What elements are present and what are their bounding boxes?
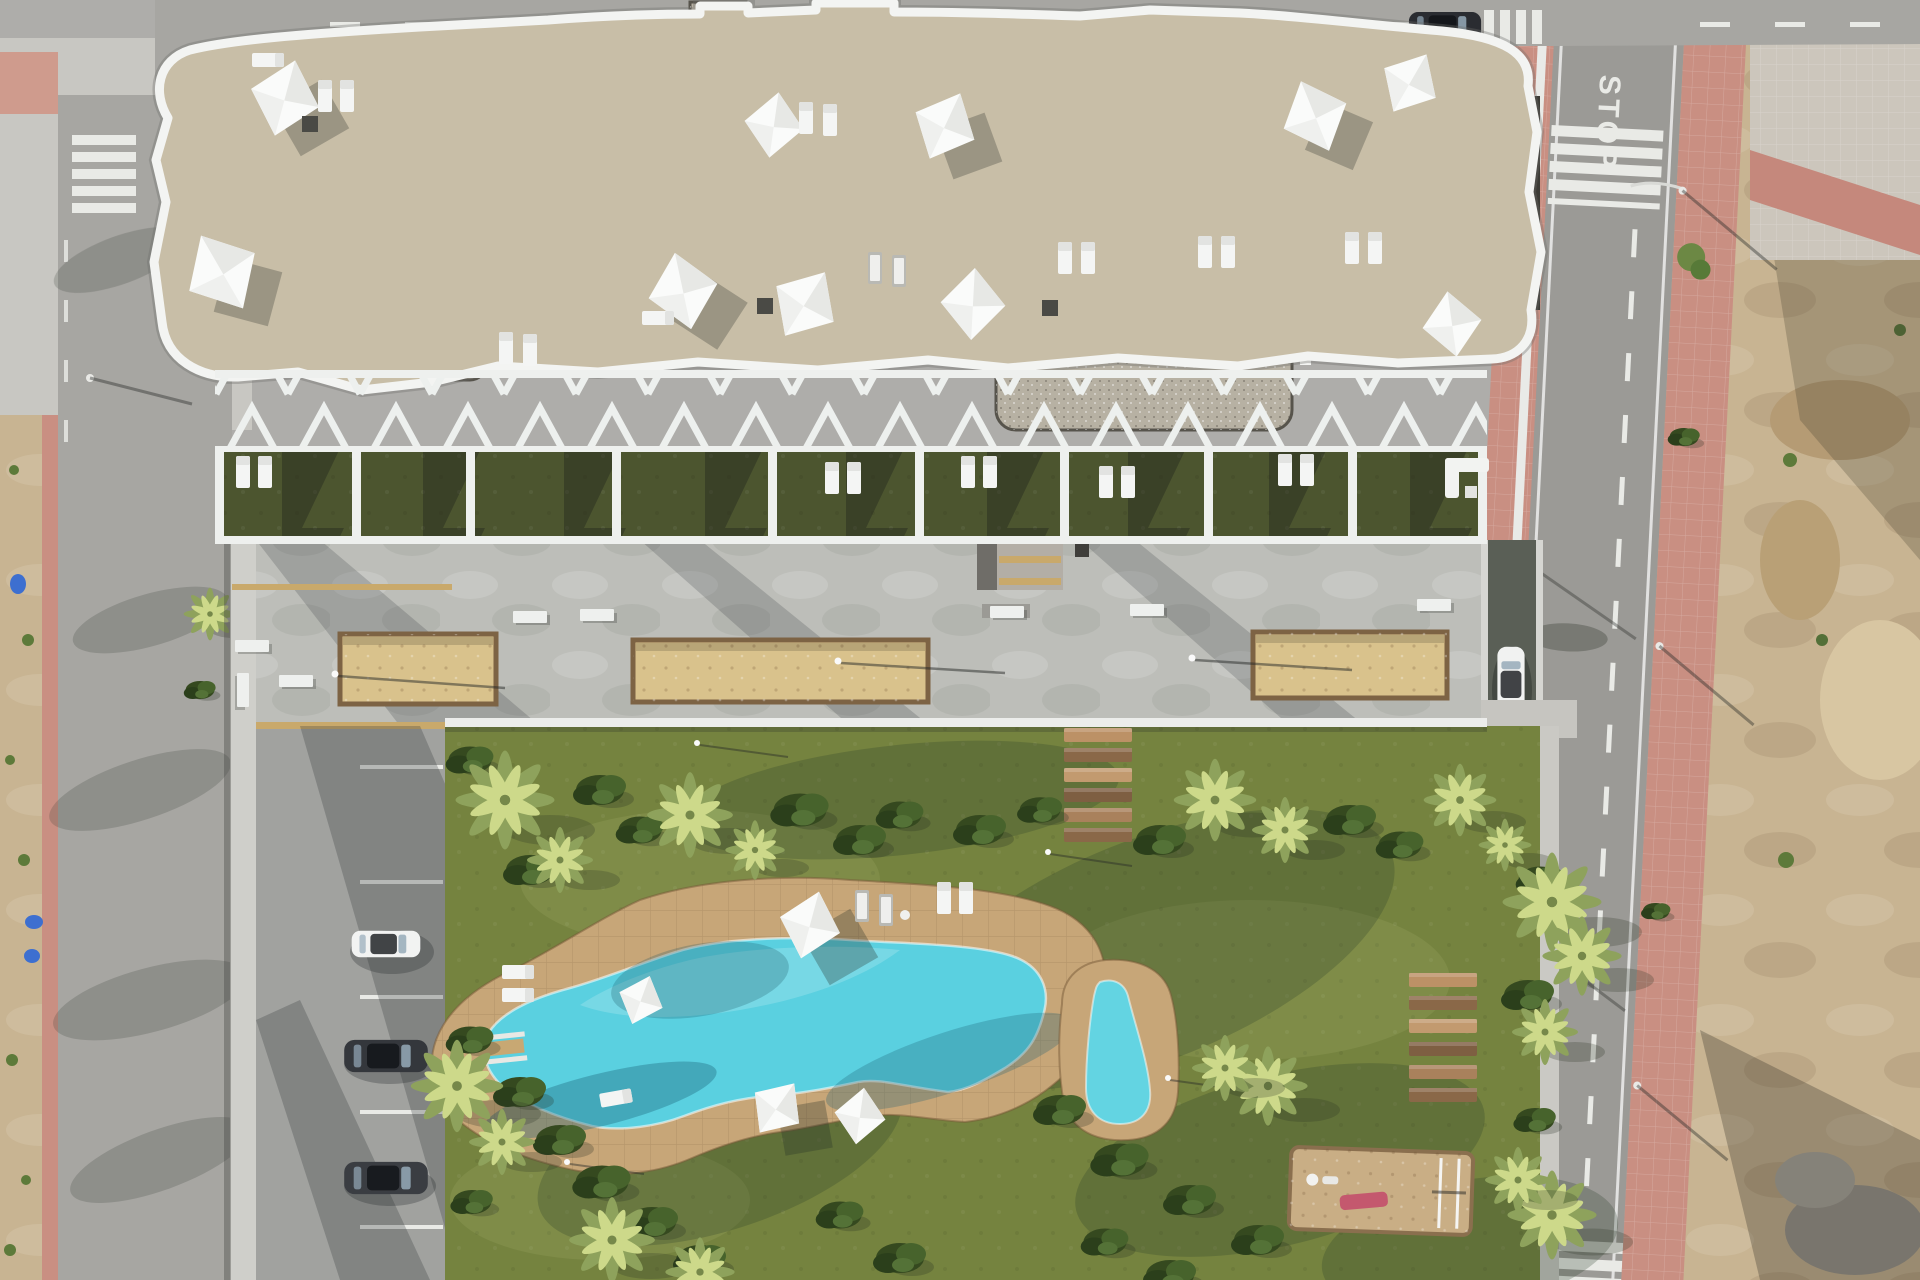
terrace-lounger [961,456,975,488]
sun-lounger [502,988,534,1002]
bench [513,611,550,625]
roof-table [757,298,773,314]
wall-shadow [445,727,1487,732]
left-red-sidewalk [42,415,60,1280]
aerial-render: STOP [0,0,1920,1280]
parked-car-dark [344,1162,428,1194]
weed [1778,852,1794,868]
terrace-lounger [825,462,839,494]
weed [1816,634,1828,646]
swing-shadow [1432,1192,1466,1193]
bench [1130,604,1167,618]
bench [990,606,1027,620]
pergola-zigzag [215,370,1487,452]
parked-car-white [352,931,421,958]
terrace-lounger [1300,454,1314,486]
parked-car-dark [344,1040,428,1072]
garden-group [411,718,1654,1280]
stop-road-marking: STOP [1588,74,1626,173]
garden-north-wall [445,718,1487,727]
ramp-curb [232,584,452,590]
planter [633,640,928,702]
sun-lounger [855,890,869,922]
terrace-front-wall [215,536,1487,544]
pergola-band [215,370,1487,454]
terrace-lounger [1278,454,1292,486]
terrace-lounger [1121,466,1135,498]
sun-lounger [937,882,951,914]
playground [1289,1147,1474,1235]
driveway-wall [1536,540,1543,726]
terrace-lounger [236,456,250,488]
side-table [900,910,910,920]
scene-svg: STOP [0,0,1920,1280]
roof-table [1042,300,1058,316]
dirt-patch [1760,500,1840,620]
sun-lounger [879,894,893,926]
pergola-beam [215,370,1487,378]
bench [580,609,617,623]
bench [279,675,316,689]
parapet-wall [154,3,1541,390]
building-group [154,2,1541,544]
terrace-lounger [847,462,861,494]
driveway-wall [1481,540,1488,726]
entrance-steps [977,540,1063,590]
weed [1783,453,1797,467]
terrace-lounger [983,456,997,488]
bench [235,640,272,654]
planter [340,634,496,704]
sun-lounger [502,965,534,979]
roof-table [302,116,318,132]
sun-lounger [959,882,973,914]
spring-toy [1322,1176,1338,1185]
left-dirt-texture [0,415,42,1280]
red-tile-corner [0,52,58,114]
bench [235,673,249,710]
bench [1417,599,1454,613]
terrace-row [215,448,1489,544]
terrace-lounger [1099,466,1113,498]
wall-shadow [224,540,231,1280]
terrace-lounger [258,456,272,488]
